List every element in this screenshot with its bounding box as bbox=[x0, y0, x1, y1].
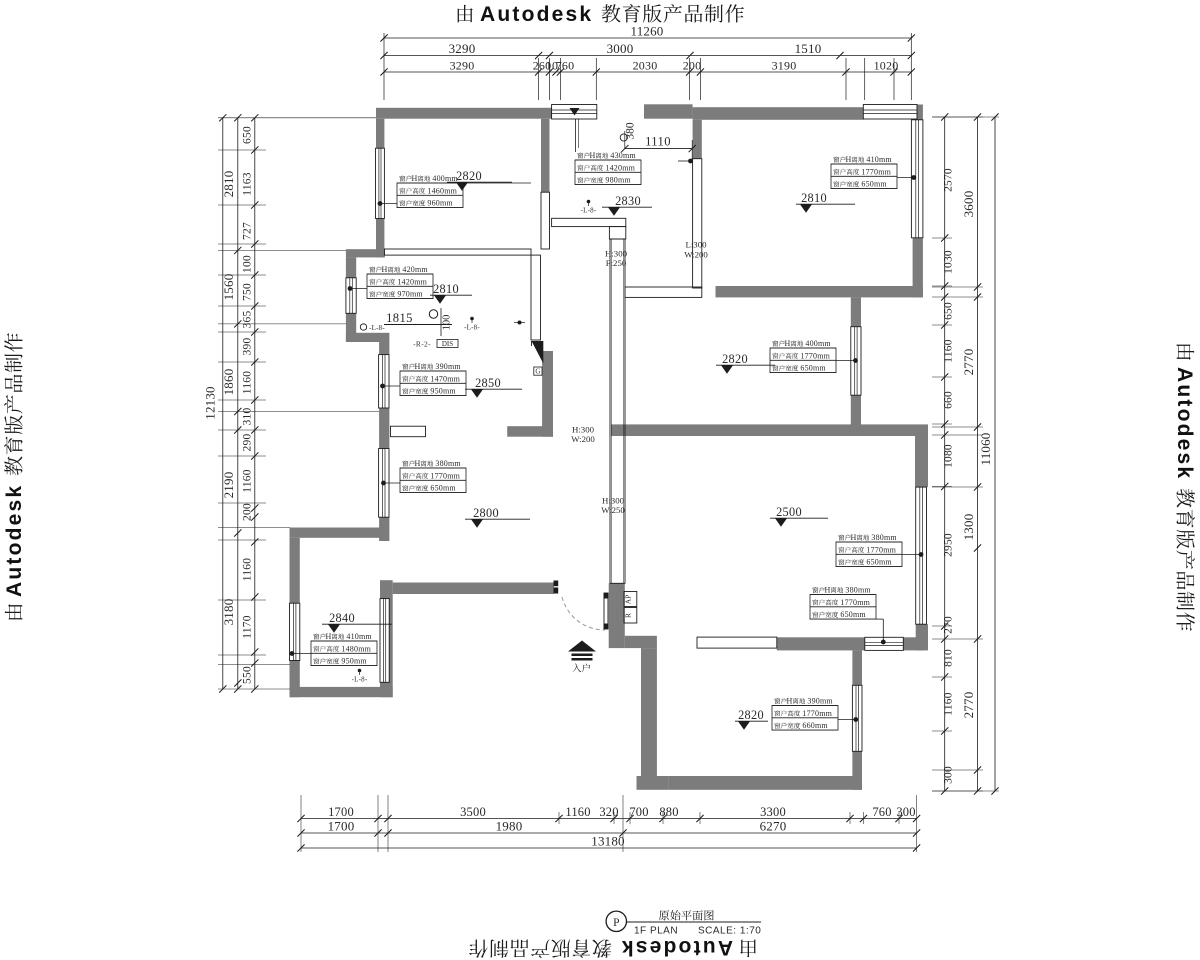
svg-text:3190: 3190 bbox=[772, 59, 797, 73]
svg-text:W:250: W:250 bbox=[601, 505, 625, 515]
svg-text:1160: 1160 bbox=[943, 339, 955, 362]
svg-text:1510: 1510 bbox=[795, 41, 822, 56]
svg-text:H: H bbox=[785, 339, 791, 348]
svg-text:1700: 1700 bbox=[328, 805, 354, 819]
svg-text:650mm: 650mm bbox=[861, 180, 887, 189]
svg-text:1160: 1160 bbox=[241, 469, 253, 492]
svg-text:380mm: 380mm bbox=[871, 533, 897, 542]
svg-text:2820: 2820 bbox=[738, 708, 764, 722]
svg-text:6270: 6270 bbox=[760, 819, 787, 834]
svg-text:1700: 1700 bbox=[328, 819, 355, 834]
svg-text:810: 810 bbox=[943, 649, 955, 667]
svg-text:L:300: L:300 bbox=[685, 240, 707, 250]
svg-text:3180: 3180 bbox=[221, 599, 236, 626]
svg-text:420mm: 420mm bbox=[402, 265, 428, 274]
svg-text:W:200: W:200 bbox=[684, 250, 708, 260]
svg-text:660mm: 660mm bbox=[802, 721, 828, 730]
svg-text:2810: 2810 bbox=[801, 191, 827, 205]
svg-text:2190: 2190 bbox=[221, 472, 236, 499]
svg-text:1815: 1815 bbox=[386, 311, 413, 325]
svg-text:1480mm: 1480mm bbox=[341, 644, 371, 653]
svg-text:13180: 13180 bbox=[591, 834, 625, 849]
svg-text:3290: 3290 bbox=[450, 59, 475, 73]
svg-text:1160: 1160 bbox=[241, 558, 253, 581]
svg-text:3000: 3000 bbox=[607, 41, 634, 56]
svg-text:1160: 1160 bbox=[943, 692, 955, 715]
svg-text:380: 380 bbox=[625, 122, 637, 140]
svg-text:1860: 1860 bbox=[221, 369, 236, 396]
svg-text:1020: 1020 bbox=[874, 59, 899, 73]
svg-text:960mm: 960mm bbox=[427, 199, 453, 208]
svg-text:H: H bbox=[415, 459, 421, 468]
svg-text:300: 300 bbox=[943, 766, 955, 784]
svg-text:650mm: 650mm bbox=[430, 484, 456, 493]
svg-text:2030: 2030 bbox=[633, 59, 658, 73]
svg-text:650: 650 bbox=[943, 302, 955, 320]
svg-text:660: 660 bbox=[943, 391, 955, 409]
svg-text:G: G bbox=[535, 368, 540, 376]
svg-text:1F PLAN: 1F PLAN bbox=[634, 926, 678, 937]
svg-text:650mm: 650mm bbox=[800, 364, 826, 373]
svg-text:1560: 1560 bbox=[221, 274, 236, 301]
svg-text:400mm: 400mm bbox=[805, 339, 831, 348]
svg-text:410mm: 410mm bbox=[866, 155, 892, 164]
svg-text:650mm: 650mm bbox=[840, 610, 866, 619]
svg-text:Autodesk: Autodesk bbox=[3, 484, 26, 597]
svg-text:12130: 12130 bbox=[202, 386, 217, 420]
svg-text:760: 760 bbox=[872, 805, 891, 819]
svg-text:2840: 2840 bbox=[329, 611, 355, 625]
svg-text:760: 760 bbox=[556, 59, 575, 73]
svg-text:310: 310 bbox=[241, 408, 253, 426]
svg-text:700: 700 bbox=[629, 805, 648, 819]
svg-text:Autodesk: Autodesk bbox=[480, 3, 593, 26]
svg-text:SCALE: 1:70: SCALE: 1:70 bbox=[698, 926, 761, 937]
svg-text:2570: 2570 bbox=[943, 168, 955, 192]
svg-text:2830: 2830 bbox=[615, 194, 641, 208]
svg-text:650: 650 bbox=[241, 126, 253, 144]
svg-text:550: 550 bbox=[241, 666, 253, 684]
svg-text:R: R bbox=[624, 613, 633, 618]
svg-text:200: 200 bbox=[683, 59, 702, 73]
svg-text:1770mm: 1770mm bbox=[861, 167, 891, 176]
svg-text:1420mm: 1420mm bbox=[605, 163, 635, 172]
svg-text:H: H bbox=[382, 265, 388, 274]
svg-text:2820: 2820 bbox=[722, 352, 748, 366]
svg-text:1300: 1300 bbox=[961, 514, 976, 541]
svg-text:-L-8-: -L-8- bbox=[464, 324, 480, 332]
svg-text:2800: 2800 bbox=[473, 506, 499, 520]
svg-text:970mm: 970mm bbox=[397, 290, 423, 299]
svg-text:H: H bbox=[590, 151, 596, 160]
svg-text:H: H bbox=[412, 174, 418, 183]
svg-text:H: H bbox=[851, 533, 857, 542]
svg-text:365: 365 bbox=[241, 311, 253, 329]
svg-text:2770: 2770 bbox=[961, 349, 976, 376]
svg-text:100: 100 bbox=[241, 255, 253, 273]
svg-text:F:250: F:250 bbox=[606, 258, 627, 268]
svg-text:750: 750 bbox=[241, 283, 253, 301]
svg-text:H: H bbox=[846, 155, 852, 164]
svg-text:11060: 11060 bbox=[978, 432, 993, 465]
svg-text:P: P bbox=[613, 917, 619, 929]
svg-text:1420mm: 1420mm bbox=[397, 277, 427, 286]
svg-text:200: 200 bbox=[241, 503, 253, 521]
svg-text:1770mm: 1770mm bbox=[800, 351, 830, 360]
svg-text:AP: AP bbox=[624, 595, 633, 605]
svg-text:1980: 1980 bbox=[496, 819, 523, 834]
svg-text:1770mm: 1770mm bbox=[840, 598, 870, 607]
svg-text:1770mm: 1770mm bbox=[866, 545, 896, 554]
svg-text:980mm: 980mm bbox=[605, 176, 631, 185]
svg-text:DIS: DIS bbox=[442, 340, 453, 348]
svg-text:1770mm: 1770mm bbox=[430, 471, 460, 480]
svg-text:H:300: H:300 bbox=[572, 425, 595, 435]
svg-text:1163: 1163 bbox=[241, 172, 253, 195]
svg-text:Autodesk: Autodesk bbox=[620, 936, 733, 959]
svg-text:3500: 3500 bbox=[460, 805, 486, 819]
svg-text:2500: 2500 bbox=[776, 505, 802, 519]
svg-text:380mm: 380mm bbox=[845, 586, 871, 595]
svg-text:-L-8-: -L-8- bbox=[581, 207, 597, 215]
svg-text:H: H bbox=[787, 697, 793, 706]
svg-text:11260: 11260 bbox=[630, 24, 663, 39]
svg-text:270: 270 bbox=[943, 616, 955, 634]
svg-text:380mm: 380mm bbox=[435, 459, 461, 468]
svg-text:2810: 2810 bbox=[433, 282, 459, 296]
svg-text:950mm: 950mm bbox=[430, 387, 456, 396]
svg-text:880: 880 bbox=[659, 805, 678, 819]
svg-text:1170: 1170 bbox=[241, 615, 253, 638]
svg-text:400mm: 400mm bbox=[432, 174, 458, 183]
svg-text:Autodesk: Autodesk bbox=[1173, 367, 1196, 480]
svg-text:1460mm: 1460mm bbox=[427, 186, 457, 195]
svg-text:H: H bbox=[415, 362, 421, 371]
svg-text:1160: 1160 bbox=[565, 805, 590, 819]
svg-text:1110: 1110 bbox=[645, 135, 671, 149]
svg-text:950mm: 950mm bbox=[341, 657, 367, 666]
svg-text:-L-8-: -L-8- bbox=[352, 676, 368, 684]
svg-text:390: 390 bbox=[241, 338, 253, 356]
svg-text:2850: 2850 bbox=[475, 376, 501, 390]
svg-text:2950: 2950 bbox=[943, 533, 955, 557]
svg-text:410mm: 410mm bbox=[346, 632, 372, 641]
svg-text:390mm: 390mm bbox=[435, 362, 461, 371]
svg-text:-R-2-: -R-2- bbox=[413, 340, 431, 349]
svg-text:1770mm: 1770mm bbox=[802, 709, 832, 718]
svg-text:H:300: H:300 bbox=[605, 249, 628, 259]
svg-text:H: H bbox=[825, 586, 831, 595]
svg-text:390mm: 390mm bbox=[807, 697, 833, 706]
svg-text:2770: 2770 bbox=[961, 692, 976, 719]
svg-text:650mm: 650mm bbox=[866, 558, 892, 567]
svg-text:W:200: W:200 bbox=[571, 434, 595, 444]
svg-text:727: 727 bbox=[241, 222, 253, 240]
svg-text:430mm: 430mm bbox=[610, 151, 636, 160]
svg-text:H:300: H:300 bbox=[602, 496, 625, 506]
svg-text:100: 100 bbox=[442, 315, 453, 331]
svg-text:H: H bbox=[326, 632, 332, 641]
svg-text:3300: 3300 bbox=[760, 805, 786, 819]
svg-text:1470mm: 1470mm bbox=[430, 374, 460, 383]
svg-text:2810: 2810 bbox=[221, 171, 236, 198]
svg-text:-L-8-: -L-8- bbox=[369, 324, 385, 332]
svg-text:1160: 1160 bbox=[241, 371, 253, 394]
svg-text:1080: 1080 bbox=[943, 444, 955, 468]
svg-text:290: 290 bbox=[241, 434, 253, 452]
svg-text:320: 320 bbox=[599, 805, 618, 819]
svg-text:1030: 1030 bbox=[943, 250, 955, 274]
svg-text:2820: 2820 bbox=[456, 169, 482, 183]
svg-text:3290: 3290 bbox=[449, 41, 476, 56]
svg-text:3600: 3600 bbox=[961, 191, 976, 218]
